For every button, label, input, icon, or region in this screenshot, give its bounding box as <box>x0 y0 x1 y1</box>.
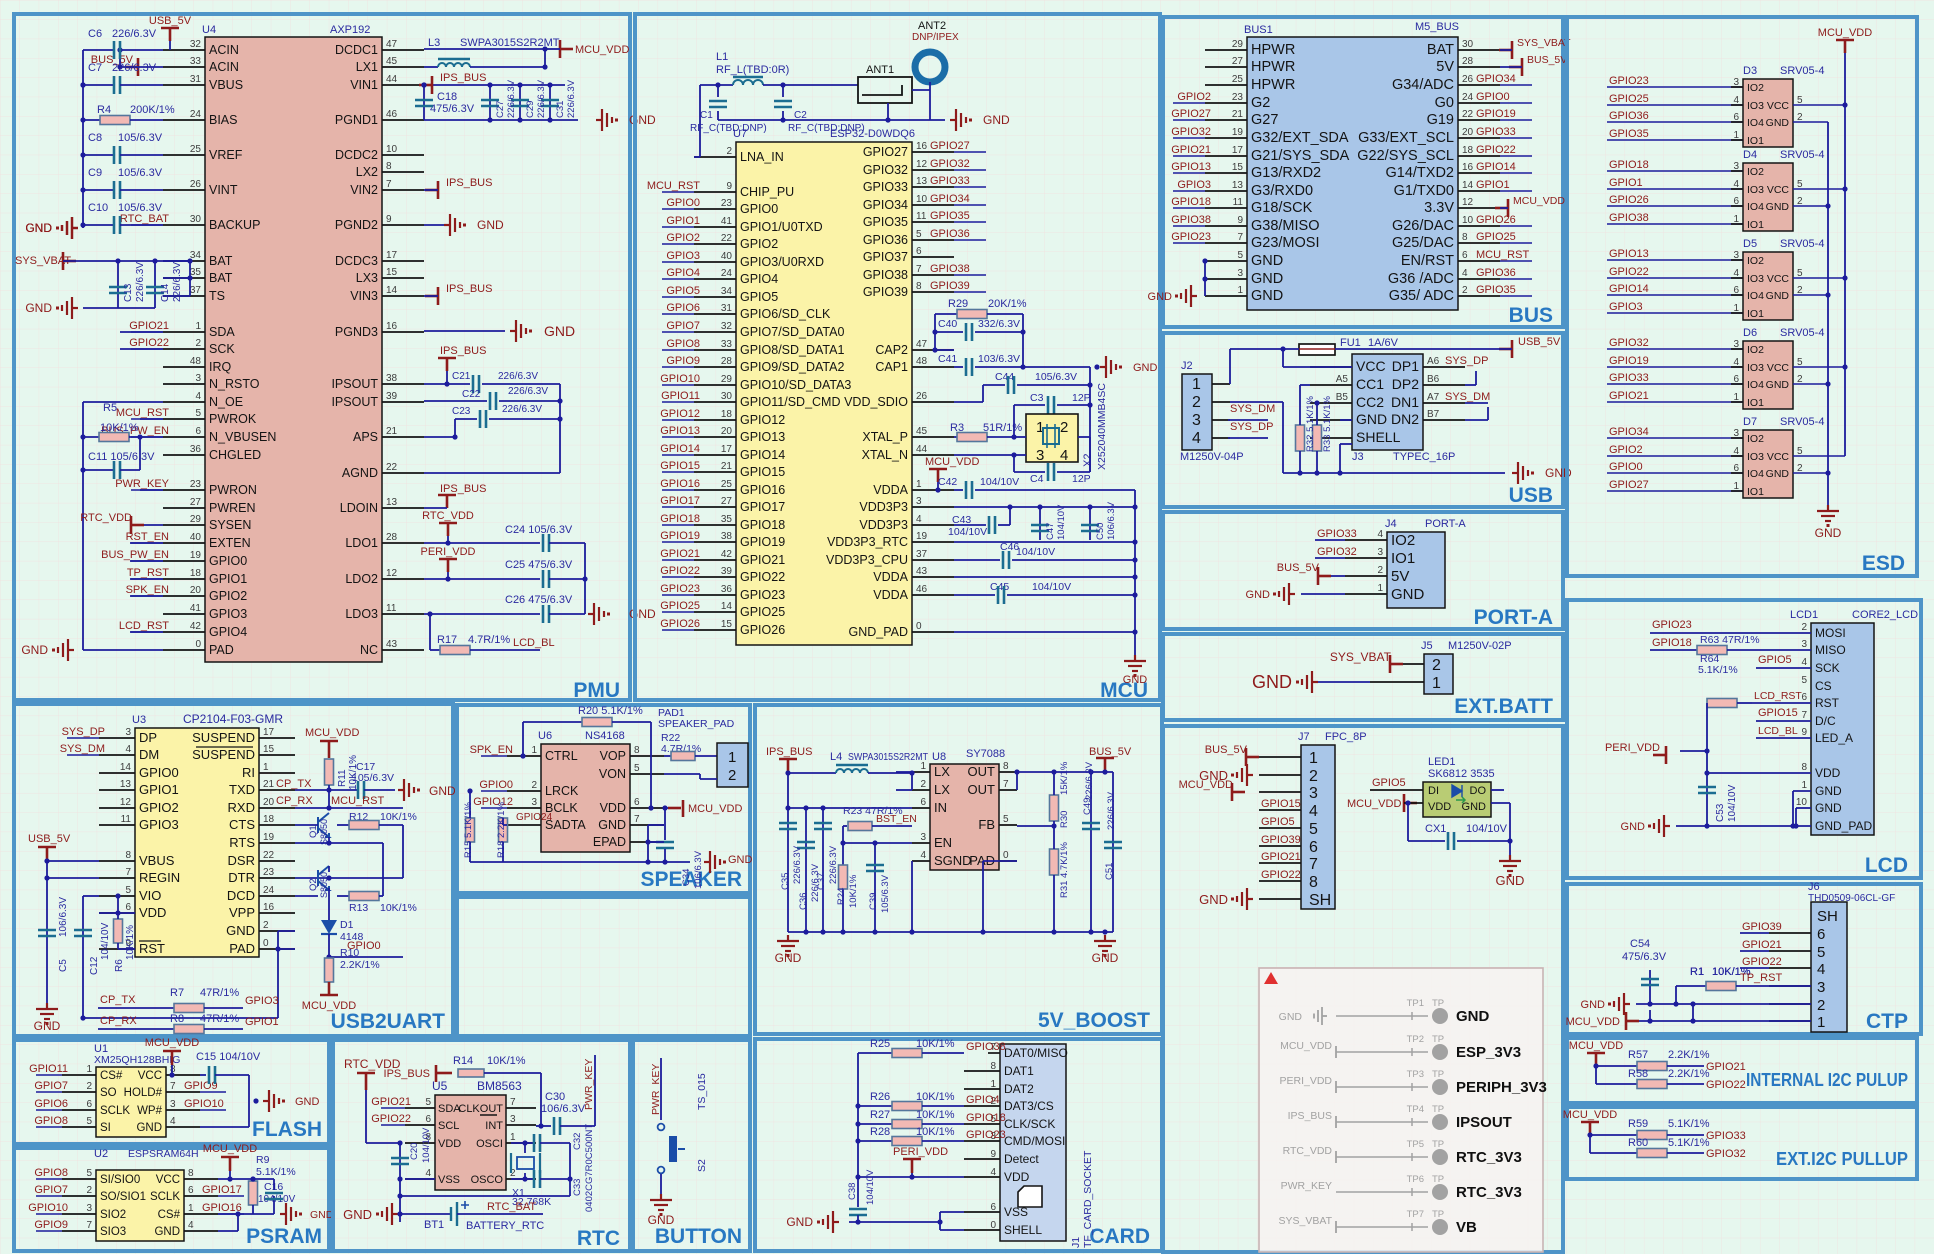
svg-text:3: 3 <box>170 1099 176 1110</box>
svg-text:R14: R14 <box>453 1055 473 1067</box>
svg-text:RTC_3V3: RTC_3V3 <box>1456 1149 1522 1166</box>
svg-text:GND: GND <box>1199 892 1228 907</box>
svg-text:SI: SI <box>100 1122 111 1134</box>
svg-text:D5: D5 <box>1743 238 1757 250</box>
svg-text:20: 20 <box>1462 127 1474 138</box>
svg-text:RTC: RTC <box>577 1227 620 1250</box>
svg-text:GPIO12: GPIO12 <box>473 796 513 808</box>
svg-text:U3: U3 <box>132 714 146 726</box>
svg-text:226/6.3V: 226/6.3V <box>112 62 157 74</box>
svg-text:GND: GND <box>310 1209 334 1221</box>
svg-text:GPIO3: GPIO3 <box>209 607 247 621</box>
svg-text:IPS_BUS: IPS_BUS <box>1288 1110 1332 1122</box>
svg-text:5V: 5V <box>1436 59 1454 75</box>
svg-text:D3: D3 <box>1743 65 1757 77</box>
svg-text:VPP: VPP <box>229 905 255 920</box>
svg-text:R11: R11 <box>337 769 348 787</box>
svg-text:33: 33 <box>721 339 733 350</box>
svg-text:18: 18 <box>190 568 202 579</box>
svg-text:G26/DAC: G26/DAC <box>1392 218 1454 234</box>
svg-text:38: 38 <box>386 373 398 384</box>
svg-text:6: 6 <box>916 246 922 257</box>
svg-text:G23/MOSI: G23/MOSI <box>1251 235 1320 251</box>
svg-text:GPIO18: GPIO18 <box>1609 159 1649 171</box>
svg-text:L1: L1 <box>716 51 728 63</box>
svg-text:GPIO23: GPIO23 <box>966 1129 1006 1141</box>
svg-text:3: 3 <box>1733 250 1739 261</box>
svg-text:4: 4 <box>1309 803 1318 820</box>
svg-text:32: 32 <box>721 321 733 332</box>
svg-text:32: 32 <box>190 39 202 50</box>
svg-text:4: 4 <box>1462 268 1468 279</box>
svg-text:5: 5 <box>1797 446 1803 457</box>
svg-text:SO/SIO1: SO/SIO1 <box>100 1191 146 1203</box>
svg-text:R20 5.1K/1%: R20 5.1K/1% <box>578 705 643 717</box>
svg-text:AGND: AGND <box>342 466 378 480</box>
svg-text:IO1: IO1 <box>1747 486 1764 498</box>
svg-text:PERI_VDD: PERI_VDD <box>420 546 475 558</box>
svg-text:16: 16 <box>1462 162 1474 173</box>
svg-text:C30: C30 <box>545 1091 565 1103</box>
svg-text:5: 5 <box>195 408 201 419</box>
svg-text:PAD: PAD <box>209 643 234 657</box>
svg-text:GPIO33: GPIO33 <box>1609 372 1649 384</box>
svg-text:GPIO14: GPIO14 <box>740 448 785 462</box>
svg-text:C15 104/10V: C15 104/10V <box>196 1051 261 1063</box>
svg-text:GND: GND <box>343 1207 372 1222</box>
svg-text:36: 36 <box>721 584 733 595</box>
svg-text:VOP: VOP <box>600 749 626 763</box>
svg-text:G25/DAC: G25/DAC <box>1392 235 1454 251</box>
svg-text:TP2: TP2 <box>1407 1034 1424 1045</box>
svg-text:29: 29 <box>721 374 733 385</box>
svg-text:BUTTON: BUTTON <box>655 1225 742 1248</box>
svg-text:PWREN: PWREN <box>209 501 256 515</box>
svg-text:48: 48 <box>190 356 202 367</box>
svg-text:CTP: CTP <box>1866 1010 1908 1033</box>
svg-text:J3: J3 <box>1352 451 1364 463</box>
svg-text:TP: TP <box>1432 1209 1444 1220</box>
svg-text:7: 7 <box>1237 232 1243 243</box>
svg-text:GND: GND <box>34 1019 61 1033</box>
svg-text:7: 7 <box>386 179 392 190</box>
svg-text:37: 37 <box>190 285 202 296</box>
svg-text:CAP1: CAP1 <box>875 360 908 374</box>
svg-text:RTS: RTS <box>229 835 255 850</box>
svg-text:LDO3: LDO3 <box>345 607 378 621</box>
svg-text:IPSOUT: IPSOUT <box>1456 1114 1512 1131</box>
svg-text:CP_RX: CP_RX <box>276 795 313 807</box>
svg-text:DAT1: DAT1 <box>1004 1064 1034 1078</box>
svg-text:TS_015: TS_015 <box>696 1073 708 1110</box>
svg-text:DAT2: DAT2 <box>1004 1082 1034 1096</box>
svg-text:GPIO22: GPIO22 <box>1476 144 1516 156</box>
svg-text:18: 18 <box>263 814 275 825</box>
svg-text:12P: 12P <box>1072 392 1091 404</box>
svg-text:VCC: VCC <box>1767 273 1790 285</box>
svg-text:18: 18 <box>721 409 733 420</box>
svg-text:3: 3 <box>1036 447 1044 464</box>
svg-text:GPIO0: GPIO0 <box>139 765 179 780</box>
svg-text:MCU_RST: MCU_RST <box>647 180 700 192</box>
svg-text:GPIO38: GPIO38 <box>863 268 908 282</box>
svg-text:GPIO3: GPIO3 <box>139 817 179 832</box>
svg-text:C39: C39 <box>868 893 879 910</box>
svg-text:SCLK: SCLK <box>100 1105 130 1117</box>
svg-text:SK6812 3535: SK6812 3535 <box>1428 768 1495 780</box>
svg-text:MCU_VDD: MCU_VDD <box>305 727 359 739</box>
svg-text:USB: USB <box>1509 484 1553 507</box>
svg-text:DTR: DTR <box>228 870 255 885</box>
svg-text:C5: C5 <box>58 959 69 972</box>
svg-text:G19: G19 <box>1427 112 1454 128</box>
svg-text:8: 8 <box>386 161 392 172</box>
svg-text:2: 2 <box>1797 463 1803 474</box>
svg-text:R28: R28 <box>870 1126 890 1138</box>
svg-text:GND: GND <box>154 1226 180 1238</box>
svg-text:SRV05-4: SRV05-4 <box>1780 416 1824 428</box>
svg-text:5: 5 <box>86 1168 92 1179</box>
svg-text:G14/TXD2: G14/TXD2 <box>1386 165 1455 181</box>
svg-text:104/10V: 104/10V <box>1056 504 1067 540</box>
svg-text:SRV05-4: SRV05-4 <box>1780 327 1824 339</box>
svg-text:R33 5.1K/1%: R33 5.1K/1% <box>1322 395 1333 452</box>
svg-text:17: 17 <box>721 444 733 455</box>
svg-text:IPS_BUS: IPS_BUS <box>440 345 486 357</box>
svg-text:C10: C10 <box>88 202 108 214</box>
svg-text:GPIO26: GPIO26 <box>1476 214 1516 226</box>
svg-text:4: 4 <box>1733 268 1739 279</box>
svg-text:IO2: IO2 <box>1747 166 1764 178</box>
svg-text:GND: GND <box>226 923 255 938</box>
svg-text:VREF: VREF <box>209 148 243 162</box>
svg-text:XTAL_N: XTAL_N <box>862 448 908 462</box>
svg-text:2: 2 <box>1377 565 1383 576</box>
svg-text:226/6.3V: 226/6.3V <box>502 404 542 415</box>
svg-text:TP_RST: TP_RST <box>1740 972 1782 984</box>
svg-text:0: 0 <box>916 621 922 632</box>
svg-text:IO1: IO1 <box>1747 397 1764 409</box>
svg-text:R25: R25 <box>870 1038 890 1050</box>
svg-text:7: 7 <box>634 814 640 825</box>
svg-text:DCD: DCD <box>227 888 255 903</box>
svg-text:1: 1 <box>1309 750 1318 767</box>
svg-text:R1: R1 <box>1690 966 1704 978</box>
svg-text:3: 3 <box>86 1203 92 1214</box>
svg-text:C23: C23 <box>452 406 471 417</box>
svg-text:226/6.3V: 226/6.3V <box>792 845 803 884</box>
svg-text:4: 4 <box>170 1116 176 1127</box>
svg-text:GPIO24: GPIO24 <box>516 812 553 823</box>
svg-text:VCC: VCC <box>1767 184 1790 196</box>
svg-text:SH: SH <box>1309 892 1331 909</box>
svg-text:PWR_KEY: PWR_KEY <box>1281 1180 1332 1192</box>
svg-text:CORE2_LCD: CORE2_LCD <box>1852 609 1918 621</box>
svg-text:17: 17 <box>386 250 398 261</box>
svg-text:CARD: CARD <box>1089 1225 1150 1248</box>
svg-text:8: 8 <box>1003 761 1009 772</box>
svg-text:5.1K/1%: 5.1K/1% <box>1668 1137 1710 1149</box>
svg-text:19: 19 <box>190 550 202 561</box>
svg-text:C3: C3 <box>1030 392 1044 404</box>
svg-text:CAP2: CAP2 <box>875 343 908 357</box>
svg-text:DO: DO <box>1470 785 1487 797</box>
svg-text:ACIN: ACIN <box>209 43 239 57</box>
svg-text:7: 7 <box>1801 710 1807 721</box>
svg-text:M5_BUS: M5_BUS <box>1415 21 1459 33</box>
svg-text:MCU_VDD: MCU_VDD <box>1569 1040 1623 1052</box>
svg-text:VDD: VDD <box>1004 1170 1030 1184</box>
svg-text:2.2K/1%: 2.2K/1% <box>496 802 507 838</box>
svg-text:S2: S2 <box>696 1159 708 1172</box>
svg-text:SYS_DM: SYS_DM <box>1230 403 1275 415</box>
svg-text:4: 4 <box>1733 179 1739 190</box>
svg-text:1: 1 <box>263 762 269 773</box>
svg-text:GPIO19: GPIO19 <box>740 535 785 549</box>
svg-text:GPIO22: GPIO22 <box>1261 869 1301 881</box>
svg-text:RTC_3V3: RTC_3V3 <box>1456 1184 1522 1201</box>
svg-text:GPIO15: GPIO15 <box>1261 798 1301 810</box>
svg-text:18: 18 <box>1462 145 1474 156</box>
svg-text:G3/RXD0: G3/RXD0 <box>1251 183 1313 199</box>
svg-text:GPIO22: GPIO22 <box>371 1113 411 1125</box>
svg-text:CLK/SCK: CLK/SCK <box>1004 1117 1055 1131</box>
svg-text:0: 0 <box>990 1220 996 1231</box>
svg-text:30: 30 <box>721 391 733 402</box>
svg-text:2: 2 <box>1817 997 1825 1014</box>
svg-text:4: 4 <box>425 1168 431 1179</box>
svg-text:CC2: CC2 <box>1356 394 1384 410</box>
svg-text:47: 47 <box>386 39 398 50</box>
svg-text:GPIO2: GPIO2 <box>139 800 179 815</box>
svg-text:MCU_VDD: MCU_VDD <box>203 1143 257 1155</box>
svg-text:27: 27 <box>1232 56 1244 67</box>
svg-text:9: 9 <box>990 1149 996 1160</box>
svg-text:DM: DM <box>139 747 159 762</box>
svg-text:2: 2 <box>1192 394 1201 411</box>
svg-text:SWPA3015S2R2MT: SWPA3015S2R2MT <box>848 751 928 763</box>
svg-text:VDD3P3: VDD3P3 <box>859 500 908 514</box>
svg-text:GND: GND <box>544 323 575 339</box>
svg-text:GPIO19: GPIO19 <box>1476 108 1516 120</box>
svg-text:103/6.3V: 103/6.3V <box>978 353 1020 365</box>
svg-text:28: 28 <box>721 356 733 367</box>
svg-text:39: 39 <box>721 566 733 577</box>
svg-text:10K/1%: 10K/1% <box>848 874 859 908</box>
svg-text:GPIO35: GPIO35 <box>863 215 908 229</box>
svg-text:3: 3 <box>920 832 926 843</box>
svg-text:C27: C27 <box>495 101 506 118</box>
svg-text:NC: NC <box>360 643 378 657</box>
svg-text:OUT: OUT <box>968 764 996 779</box>
svg-text:5: 5 <box>1797 179 1803 190</box>
svg-text:SYS_DP: SYS_DP <box>1230 421 1273 433</box>
svg-text:15: 15 <box>386 267 398 278</box>
svg-text:DN1: DN1 <box>1391 394 1419 410</box>
svg-text:GPIO10: GPIO10 <box>28 1202 68 1214</box>
svg-text:LX3: LX3 <box>356 271 378 285</box>
svg-text:106/6.3V: 106/6.3V <box>58 897 69 937</box>
svg-text:12: 12 <box>916 159 928 170</box>
svg-text:4: 4 <box>1801 657 1807 668</box>
svg-text:15: 15 <box>1232 162 1244 173</box>
svg-text:C40: C40 <box>938 318 957 330</box>
svg-text:5: 5 <box>425 1097 431 1108</box>
svg-text:EXT.I2C PULLUP: EXT.I2C PULLUP <box>1776 1149 1908 1169</box>
svg-text:GND: GND <box>1766 290 1790 302</box>
svg-text:IO4: IO4 <box>1747 201 1764 213</box>
svg-text:226/6.3V: 226/6.3V <box>566 79 577 118</box>
svg-text:LDO1: LDO1 <box>345 536 378 550</box>
svg-text:8: 8 <box>634 745 640 756</box>
svg-text:C11 105/6.3V: C11 105/6.3V <box>88 451 155 463</box>
svg-text:44: 44 <box>916 444 928 455</box>
svg-text:VDD: VDD <box>139 905 166 920</box>
svg-text:C20: C20 <box>409 1143 420 1160</box>
svg-text:USB_5V: USB_5V <box>28 833 71 845</box>
svg-text:GPIO38: GPIO38 <box>966 1041 1006 1053</box>
svg-text:GPIO19: GPIO19 <box>1609 355 1649 367</box>
svg-text:4: 4 <box>916 514 922 525</box>
svg-text:SRV05-4: SRV05-4 <box>1780 238 1824 250</box>
svg-text:VCC: VCC <box>1767 451 1790 463</box>
svg-text:N_RSTO: N_RSTO <box>209 377 260 391</box>
svg-text:GPIO4: GPIO4 <box>966 1094 1000 1106</box>
svg-text:GPIO21: GPIO21 <box>1609 390 1649 402</box>
svg-text:3: 3 <box>125 727 131 738</box>
svg-text:ACIN: ACIN <box>209 60 239 74</box>
svg-text:SCK: SCK <box>209 342 235 356</box>
svg-text:G1/TXD0: G1/TXD0 <box>1394 183 1454 199</box>
svg-text:4: 4 <box>920 850 926 861</box>
svg-text:GPIO27: GPIO27 <box>1171 108 1211 120</box>
svg-text:GPIO3/U0RXD: GPIO3/U0RXD <box>740 255 824 269</box>
svg-text:PGND3: PGND3 <box>335 325 378 339</box>
svg-text:IO3: IO3 <box>1747 362 1764 374</box>
svg-text:VDD: VDD <box>1815 766 1841 780</box>
svg-text:IO4: IO4 <box>1747 379 1764 391</box>
svg-text:IO1: IO1 <box>1747 219 1764 231</box>
svg-text:GPIO0: GPIO0 <box>1609 461 1643 473</box>
svg-text:3: 3 <box>1801 639 1807 650</box>
svg-text:BACKUP: BACKUP <box>209 218 260 232</box>
svg-text:R27: R27 <box>870 1109 890 1121</box>
svg-text:GPIO7/SD_DATA0: GPIO7/SD_DATA0 <box>740 325 844 339</box>
svg-text:GPIO15: GPIO15 <box>740 465 785 479</box>
svg-text:TXD: TXD <box>229 782 255 797</box>
svg-text:5: 5 <box>125 885 131 896</box>
svg-text:GND: GND <box>1251 253 1283 269</box>
svg-text:SPK_EN: SPK_EN <box>126 584 169 596</box>
svg-text:GPIO32: GPIO32 <box>1171 126 1211 138</box>
svg-text:GPIO2: GPIO2 <box>209 589 247 603</box>
svg-text:IPS_BUS: IPS_BUS <box>440 483 486 495</box>
svg-text:23: 23 <box>1232 92 1244 103</box>
svg-text:GPIO11: GPIO11 <box>29 1063 68 1075</box>
svg-text:39: 39 <box>386 391 398 402</box>
svg-text:CHIP_PU: CHIP_PU <box>740 185 794 199</box>
svg-text:VDD3P3_RTC: VDD3P3_RTC <box>827 535 908 549</box>
svg-text:8: 8 <box>125 850 131 861</box>
svg-text:27: 27 <box>721 496 733 507</box>
svg-text:XM25QH128BHIG: XM25QH128BHIG <box>94 1054 180 1066</box>
svg-text:31: 31 <box>190 74 202 85</box>
svg-text:20: 20 <box>190 585 202 596</box>
svg-text:RTC_BAT: RTC_BAT <box>120 213 169 225</box>
svg-text:4: 4 <box>990 1167 996 1178</box>
svg-text:LX1: LX1 <box>356 60 378 74</box>
svg-text:2: 2 <box>263 920 269 931</box>
svg-text:25: 25 <box>190 144 202 155</box>
svg-text:C12: C12 <box>89 956 100 975</box>
svg-text:IO3: IO3 <box>1747 451 1764 463</box>
svg-text:IO1: IO1 <box>1391 550 1415 567</box>
svg-text:G33/EXT_SCL: G33/EXT_SCL <box>1358 130 1454 146</box>
svg-text:PGND1: PGND1 <box>335 113 378 127</box>
svg-text:106/6.3V: 106/6.3V <box>541 1103 586 1115</box>
svg-text:B5: B5 <box>1336 392 1349 403</box>
svg-text:GPIO1: GPIO1 <box>666 215 700 227</box>
svg-text:C26 475/6.3V: C26 475/6.3V <box>505 594 573 606</box>
svg-text:R58: R58 <box>1628 1068 1648 1080</box>
svg-text:C4: C4 <box>1030 473 1044 485</box>
svg-text:GPIO1: GPIO1 <box>1609 177 1643 189</box>
svg-text:13: 13 <box>916 176 928 187</box>
svg-text:42: 42 <box>190 621 202 632</box>
svg-text:10: 10 <box>916 194 928 205</box>
svg-text:PSRAM: PSRAM <box>246 1225 322 1248</box>
svg-text:3: 3 <box>1733 428 1739 439</box>
svg-text:GND: GND <box>1462 801 1487 813</box>
svg-text:GPIO0: GPIO0 <box>666 197 700 209</box>
svg-text:C21: C21 <box>452 371 471 382</box>
svg-text:G2: G2 <box>1251 95 1270 111</box>
svg-text:SYS_VBAT: SYS_VBAT <box>1330 650 1392 664</box>
svg-text:TP5: TP5 <box>1407 1139 1424 1150</box>
svg-text:VCC: VCC <box>1767 362 1790 374</box>
svg-text:LDO2: LDO2 <box>345 572 378 586</box>
svg-text:VB: VB <box>1456 1219 1477 1236</box>
svg-text:SHELL: SHELL <box>1356 429 1401 445</box>
svg-text:GND: GND <box>1766 379 1790 391</box>
svg-text:105/6.3V: 105/6.3V <box>1035 371 1077 383</box>
svg-text:BUS: BUS <box>1509 304 1553 327</box>
svg-text:D7: D7 <box>1743 416 1757 428</box>
svg-text:GPIO22: GPIO22 <box>740 570 785 584</box>
svg-text:1: 1 <box>86 1064 92 1075</box>
svg-text:L4: L4 <box>830 751 842 763</box>
svg-text:GPIO1: GPIO1 <box>1476 179 1510 191</box>
svg-text:HOLD#: HOLD# <box>124 1087 163 1099</box>
svg-text:105/6.3V: 105/6.3V <box>118 132 163 144</box>
svg-text:GPIO7: GPIO7 <box>34 1080 68 1092</box>
svg-text:15K/1%: 15K/1% <box>1059 761 1070 795</box>
svg-text:GPIO39: GPIO39 <box>930 280 970 292</box>
svg-text:3: 3 <box>510 1114 516 1125</box>
svg-text:GPIO23: GPIO23 <box>660 583 700 595</box>
svg-text:TP: TP <box>1432 1069 1444 1080</box>
svg-text:7: 7 <box>125 867 131 878</box>
svg-text:GPIO26: GPIO26 <box>1609 194 1649 206</box>
svg-text:MCU_RST: MCU_RST <box>331 795 384 807</box>
svg-text:CHGLED: CHGLED <box>209 448 261 462</box>
svg-text:G21/SYS_SDA: G21/SYS_SDA <box>1251 148 1350 164</box>
svg-text:2: 2 <box>1801 622 1807 633</box>
svg-text:3: 3 <box>1377 547 1383 558</box>
svg-text:GPIO27: GPIO27 <box>1609 479 1649 491</box>
svg-text:IPSOUT: IPSOUT <box>331 395 378 409</box>
svg-text:GPIO21: GPIO21 <box>740 553 785 567</box>
